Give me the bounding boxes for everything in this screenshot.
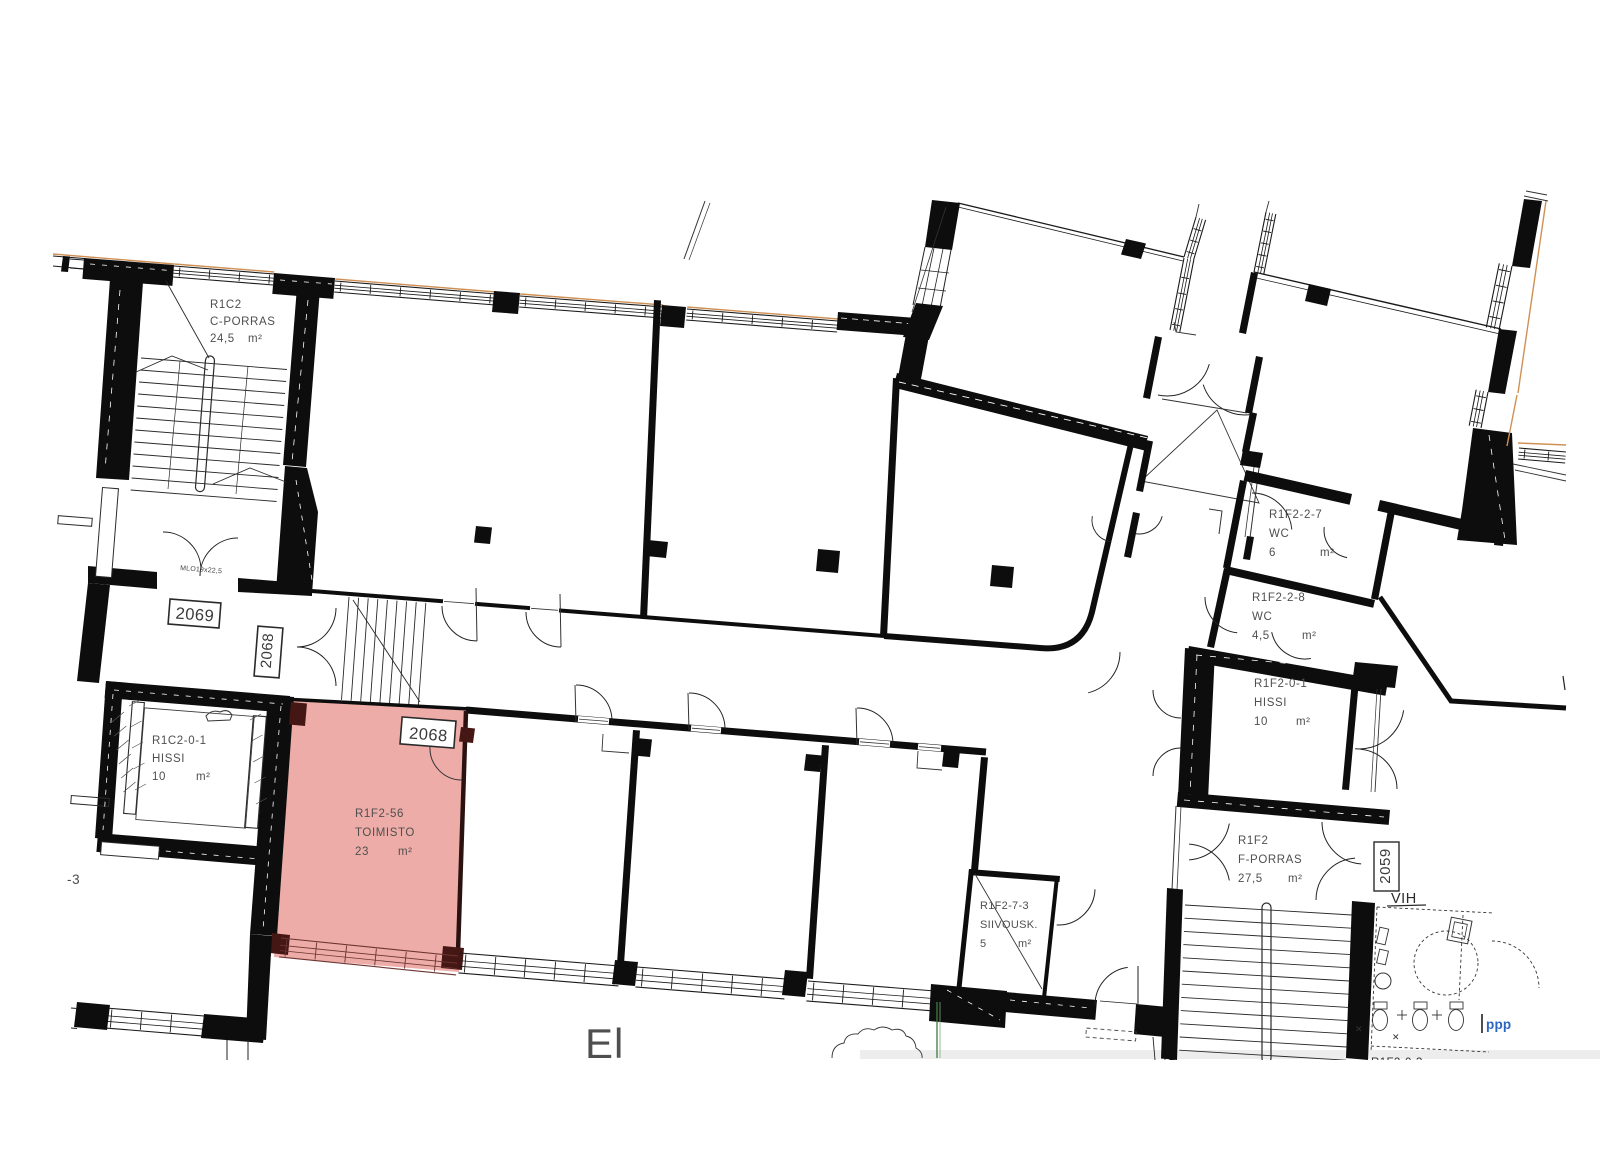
svg-text:C-PORRAS: C-PORRAS (210, 316, 276, 328)
svg-text:27,5: 27,5 (1238, 873, 1263, 885)
svg-text:24,5: 24,5 (210, 333, 235, 345)
svg-text:m²: m² (1320, 547, 1335, 559)
svg-text:2068: 2068 (408, 725, 448, 746)
svg-text:m²: m² (248, 333, 263, 345)
svg-text:✕: ✕ (1355, 1024, 1363, 1034)
svg-text:VIH: VIH (1391, 891, 1417, 907)
svg-text:HISSI: HISSI (152, 753, 185, 765)
svg-text:m²: m² (398, 846, 413, 858)
svg-text:HISSI: HISSI (1254, 697, 1287, 709)
svg-text:10: 10 (1254, 716, 1268, 728)
svg-text:23: 23 (355, 846, 369, 858)
svg-text:ppp: ppp (1486, 1017, 1511, 1032)
svg-text:TOIMISTO: TOIMISTO (355, 827, 415, 839)
svg-text:5: 5 (980, 938, 986, 950)
svg-text:2068: 2068 (258, 632, 277, 668)
svg-text:4,5: 4,5 (1252, 630, 1270, 642)
svg-text:2059: 2059 (1377, 848, 1394, 883)
svg-text:R1F2-56: R1F2-56 (355, 808, 404, 820)
svg-text:6: 6 (1269, 547, 1276, 559)
svg-text:R1C2: R1C2 (210, 299, 242, 311)
svg-text:10: 10 (152, 771, 166, 783)
svg-text:El: El (585, 1020, 624, 1067)
svg-text:R1F2: R1F2 (1238, 835, 1269, 847)
svg-text:R1F2-7-3: R1F2-7-3 (980, 900, 1029, 912)
svg-text:R1C2-0-1: R1C2-0-1 (152, 735, 207, 747)
svg-text:SIIVOUSK.: SIIVOUSK. (980, 919, 1038, 931)
svg-text:✕: ✕ (1392, 1032, 1400, 1042)
svg-text:m²: m² (196, 771, 211, 783)
svg-text:m²: m² (1296, 716, 1311, 728)
svg-text:F-PORRAS: F-PORRAS (1238, 854, 1302, 866)
svg-text:m²: m² (1018, 938, 1031, 950)
svg-text:m²: m² (1288, 873, 1303, 885)
svg-text:R1F2-2-8: R1F2-2-8 (1252, 592, 1305, 604)
svg-text:WC: WC (1252, 611, 1272, 623)
svg-text:m²: m² (1302, 630, 1317, 642)
svg-text:R1F2-0-1: R1F2-0-1 (1254, 678, 1307, 690)
svg-text:R1F2-2-7: R1F2-2-7 (1269, 509, 1322, 521)
svg-text:2069: 2069 (175, 605, 215, 626)
svg-text:WC: WC (1269, 528, 1289, 540)
svg-text:-3: -3 (67, 872, 80, 887)
